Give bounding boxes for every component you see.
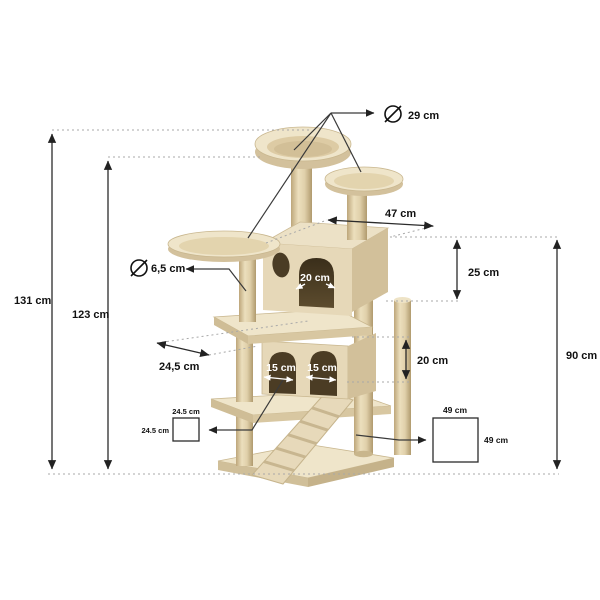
left-platform: [168, 231, 280, 262]
label-small-footprint-depth: 24.5 cm: [141, 426, 169, 435]
label-platform-depth: 24,5 cm: [159, 361, 200, 373]
label-base-depth: 49 cm: [484, 435, 509, 445]
diagram-canvas: 131 cm 123 cm 29 cm 47 cm 25 cm: [0, 0, 600, 600]
extension-47-right: [390, 226, 434, 237]
small-footprint-square: [173, 418, 199, 441]
label-tower-height: 90 cm: [566, 350, 597, 362]
label-platform-diameter: 29 cm: [408, 110, 439, 122]
dimension-line-245: [157, 343, 209, 355]
dimension-diagram: 131 cm 123 cm 29 cm 47 cm 25 cm: [0, 0, 600, 600]
diameter-icon: [385, 106, 401, 122]
second-platform: [325, 167, 403, 196]
upper-house: [263, 222, 388, 316]
label-lower-opening-left: 15 cm: [266, 362, 296, 374]
label-upper-height: 123 cm: [72, 309, 110, 321]
pole-diameter-leader: [186, 269, 246, 291]
label-upper-opening: 20 cm: [300, 272, 330, 284]
label-small-footprint-width: 24.5 cm: [172, 407, 200, 416]
label-roof-width: 47 cm: [385, 208, 416, 220]
label-lower-opening-right: 15 cm: [307, 362, 337, 374]
label-total-height: 131 cm: [14, 295, 52, 307]
label-lower-house-height: 20 cm: [417, 355, 448, 367]
base-square: [433, 418, 478, 462]
cat-tree-illustration: [168, 127, 411, 487]
pole-right-outer: [394, 297, 411, 455]
top-bed: [255, 127, 351, 169]
pole-diameter-icon: [131, 260, 147, 276]
label-upper-house-height: 25 cm: [468, 267, 499, 279]
label-base-width: 49 cm: [443, 405, 468, 415]
label-pole-diameter: 6,5 cm: [151, 263, 185, 275]
